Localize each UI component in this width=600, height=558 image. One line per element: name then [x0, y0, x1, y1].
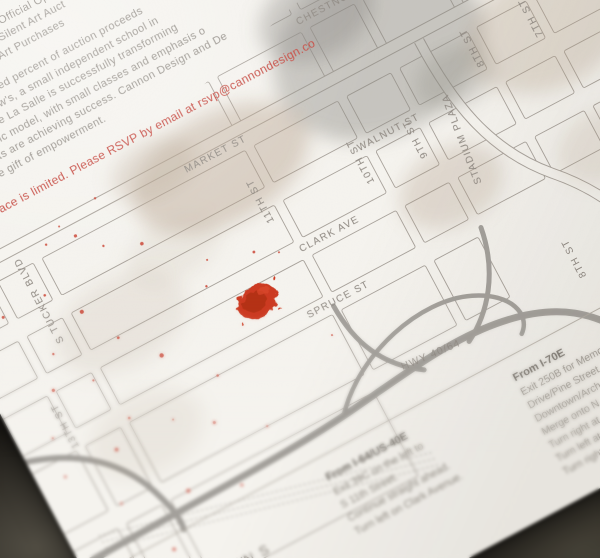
- invitation-card: Official OpenSilent Art AuctArt Purchase…: [0, 0, 600, 558]
- photo-of-invitation-card: Official OpenSilent Art AuctArt Purchase…: [0, 0, 600, 558]
